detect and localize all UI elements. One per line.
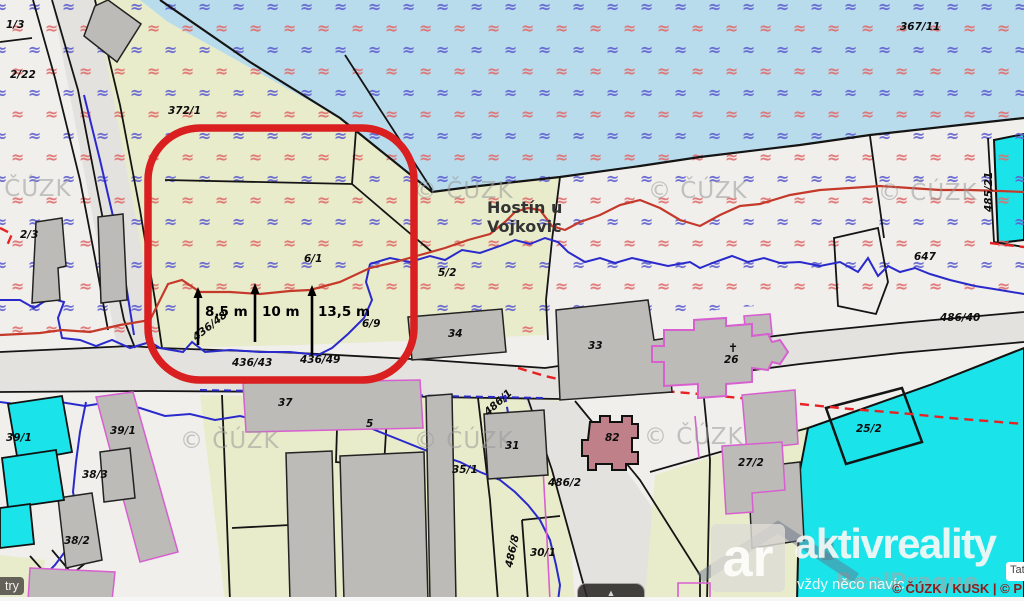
- wave-symbol: ≈: [810, 40, 823, 59]
- wave-symbol: ≈: [487, 62, 500, 81]
- wave-symbol: ≈: [79, 62, 92, 81]
- wave-symbol: ≈: [1014, 169, 1024, 188]
- wave-symbol: ≈: [249, 191, 262, 210]
- wave-symbol: ≈: [555, 19, 568, 38]
- wave-symbol: ≈: [419, 277, 432, 296]
- wave-symbol: ≈: [674, 83, 687, 102]
- wave-symbol: ≈: [793, 105, 806, 124]
- wave-symbol: ≈: [657, 62, 670, 81]
- parcel-label: 38/3: [82, 469, 108, 481]
- wave-symbol: ≈: [589, 19, 602, 38]
- wave-symbol: ≈: [283, 234, 296, 253]
- wave-symbol: ≈: [963, 62, 976, 81]
- wave-symbol: ≈: [487, 277, 500, 296]
- wave-symbol: ≈: [640, 40, 653, 59]
- wave-symbol: ≈: [215, 105, 228, 124]
- wave-symbol: ≈: [963, 105, 976, 124]
- wave-symbol: ≈: [623, 62, 636, 81]
- parcel-label: 38/2: [64, 535, 90, 547]
- wave-symbol: ≈: [623, 105, 636, 124]
- wave-symbol: ≈: [521, 19, 534, 38]
- wave-symbol: ≈: [385, 19, 398, 38]
- wave-symbol: ≈: [283, 62, 296, 81]
- wave-symbol: ≈: [980, 126, 993, 145]
- wave-symbol: ≈: [742, 255, 755, 274]
- wave-symbol: ≈: [589, 234, 602, 253]
- wave-symbol: ≈: [895, 148, 908, 167]
- wave-symbol: ≈: [691, 62, 704, 81]
- parcel-label: 5/2: [438, 267, 456, 279]
- parcel-label: 372/1: [168, 105, 201, 117]
- wave-symbol: ≈: [1014, 212, 1024, 231]
- wave-symbol: ≈: [810, 169, 823, 188]
- wave-symbol: ≈: [453, 62, 466, 81]
- wave-symbol: ≈: [844, 212, 857, 231]
- wave-symbol: ≈: [317, 19, 330, 38]
- wave-symbol: ≈: [657, 19, 670, 38]
- wave-symbol: ≈: [215, 62, 228, 81]
- wave-symbol: ≈: [368, 212, 381, 231]
- wave-symbol: ≈: [113, 62, 126, 81]
- wave-symbol: ≈: [470, 126, 483, 145]
- wave-symbol: ≈: [385, 234, 398, 253]
- wave-symbol: ≈: [725, 277, 738, 296]
- wave-symbol: ≈: [368, 40, 381, 59]
- wave-symbol: ≈: [623, 148, 636, 167]
- wave-symbol: ≈: [776, 255, 789, 274]
- wave-symbol: ≈: [164, 255, 177, 274]
- wave-symbol: ≈: [640, 126, 653, 145]
- wave-symbol: ≈: [11, 320, 24, 339]
- wave-symbol: ≈: [980, 83, 993, 102]
- wave-symbol: ≈: [351, 234, 364, 253]
- wave-symbol: ≈: [453, 105, 466, 124]
- wave-symbol: ≈: [793, 234, 806, 253]
- wave-symbol: ≈: [351, 62, 364, 81]
- wave-symbol: ≈: [521, 277, 534, 296]
- wave-symbol: ≈: [997, 277, 1010, 296]
- wave-symbol: ≈: [776, 212, 789, 231]
- wave-symbol: ≈: [300, 212, 313, 231]
- wave-symbol: ≈: [572, 0, 585, 16]
- wave-symbol: ≈: [453, 277, 466, 296]
- parcel-label: 25/2: [856, 423, 882, 435]
- parcel-label: ✝: [728, 341, 738, 355]
- wave-symbol: ≈: [895, 105, 908, 124]
- wave-symbol: ≈: [980, 0, 993, 16]
- parcel-label: 26: [724, 354, 739, 366]
- parcel-label: 2/22: [10, 69, 36, 81]
- wave-symbol: ≈: [725, 234, 738, 253]
- wave-symbol: ≈: [844, 83, 857, 102]
- wave-symbol: ≈: [912, 212, 925, 231]
- wave-symbol: ≈: [62, 298, 75, 317]
- wave-symbol: ≈: [555, 148, 568, 167]
- wave-symbol: ≈: [504, 255, 517, 274]
- wave-symbol: ≈: [1014, 40, 1024, 59]
- wave-symbol: ≈: [521, 62, 534, 81]
- wave-symbol: ≈: [623, 19, 636, 38]
- wave-symbol: ≈: [419, 62, 432, 81]
- wave-symbol: ≈: [691, 19, 704, 38]
- wave-symbol: ≈: [368, 0, 381, 16]
- measurement-label: 10 m: [262, 304, 300, 320]
- wave-symbol: ≈: [606, 169, 619, 188]
- parcel-label: 647: [914, 251, 937, 263]
- wave-symbol: ≈: [708, 126, 721, 145]
- wave-symbol: ≈: [742, 83, 755, 102]
- wave-symbol: ≈: [827, 19, 840, 38]
- wave-symbol: ≈: [28, 83, 41, 102]
- wave-symbol: ≈: [317, 62, 330, 81]
- wave-symbol: ≈: [538, 298, 551, 317]
- scale-label: try: [0, 577, 24, 595]
- svg-text:Hostín u: Hostín u: [487, 198, 562, 217]
- wave-symbol: ≈: [946, 83, 959, 102]
- wave-symbol: ≈: [28, 126, 41, 145]
- place-name: Hostín u Vojkovic: [487, 198, 562, 236]
- wave-symbol: ≈: [742, 212, 755, 231]
- wave-symbol: ≈: [623, 234, 636, 253]
- wave-symbol: ≈: [249, 105, 262, 124]
- wave-symbol: ≈: [283, 105, 296, 124]
- wave-symbol: ≈: [164, 169, 177, 188]
- wave-symbol: ≈: [912, 83, 925, 102]
- wave-symbol: ≈: [657, 234, 670, 253]
- wave-symbol: ≈: [844, 40, 857, 59]
- wave-symbol: ≈: [810, 83, 823, 102]
- wave-symbol: ≈: [759, 62, 772, 81]
- wave-symbol: ≈: [963, 148, 976, 167]
- wave-symbol: ≈: [249, 148, 262, 167]
- wave-symbol: ≈: [861, 234, 874, 253]
- wave-symbol: ≈: [538, 83, 551, 102]
- wave-symbol: ≈: [181, 191, 194, 210]
- wave-symbol: ≈: [691, 105, 704, 124]
- wave-symbol: ≈: [759, 277, 772, 296]
- wave-symbol: ≈: [691, 234, 704, 253]
- parcel-label: 31: [505, 440, 520, 452]
- wave-symbol: ≈: [946, 255, 959, 274]
- wave-symbol: ≈: [470, 212, 483, 231]
- wave-symbol: ≈: [606, 255, 619, 274]
- wave-symbol: ≈: [844, 126, 857, 145]
- wave-symbol: ≈: [810, 0, 823, 16]
- wave-symbol: ≈: [878, 0, 891, 16]
- cuzk-watermark: © ČÚZK: [648, 176, 748, 204]
- wave-symbol: ≈: [776, 169, 789, 188]
- wave-symbol: ≈: [470, 255, 483, 274]
- wave-symbol: ≈: [589, 62, 602, 81]
- wave-symbol: ≈: [997, 19, 1010, 38]
- wave-symbol: ≈: [62, 212, 75, 231]
- wave-symbol: ≈: [198, 255, 211, 274]
- wave-symbol: ≈: [300, 0, 313, 16]
- wave-symbol: ≈: [861, 277, 874, 296]
- wave-symbol: ≈: [453, 148, 466, 167]
- logo-tagline: vždy něco navíc: [797, 576, 905, 593]
- wave-symbol: ≈: [130, 0, 143, 16]
- wave-symbol: ≈: [827, 277, 840, 296]
- wave-symbol: ≈: [793, 277, 806, 296]
- wave-symbol: ≈: [79, 320, 92, 339]
- wave-symbol: ≈: [674, 40, 687, 59]
- wave-symbol: ≈: [538, 126, 551, 145]
- wave-symbol: ≈: [1014, 83, 1024, 102]
- wave-symbol: ≈: [878, 40, 891, 59]
- cuzk-watermark: © ČÚZK: [0, 174, 72, 202]
- wave-symbol: ≈: [334, 83, 347, 102]
- wave-symbol: ≈: [96, 126, 109, 145]
- wave-symbol: ≈: [11, 148, 24, 167]
- wave-symbol: ≈: [572, 126, 585, 145]
- wave-symbol: ≈: [555, 105, 568, 124]
- wave-symbol: ≈: [623, 191, 636, 210]
- wave-symbol: ≈: [113, 191, 126, 210]
- wave-symbol: ≈: [249, 234, 262, 253]
- cuzk-watermark: © ČÚZK: [414, 426, 514, 454]
- wave-symbol: ≈: [657, 277, 670, 296]
- wave-symbol: ≈: [572, 83, 585, 102]
- parcel-label: 486/40: [939, 312, 980, 324]
- wave-symbol: ≈: [215, 19, 228, 38]
- wave-symbol: ≈: [351, 19, 364, 38]
- wave-symbol: ≈: [572, 40, 585, 59]
- wave-symbol: ≈: [0, 126, 7, 145]
- wave-symbol: ≈: [861, 191, 874, 210]
- wave-symbol: ≈: [946, 212, 959, 231]
- wave-symbol: ≈: [895, 234, 908, 253]
- wave-symbol: ≈: [198, 169, 211, 188]
- wave-symbol: ≈: [283, 277, 296, 296]
- wave-symbol: ≈: [759, 234, 772, 253]
- wave-symbol: ≈: [827, 62, 840, 81]
- wave-symbol: ≈: [0, 0, 7, 16]
- measurement-label: 8,5 m: [205, 304, 248, 320]
- wave-symbol: ≈: [79, 277, 92, 296]
- wave-symbol: ≈: [385, 62, 398, 81]
- svg-text:Vojkovic: Vojkovic: [487, 217, 562, 236]
- wave-symbol: ≈: [419, 19, 432, 38]
- wave-symbol: ≈: [198, 83, 211, 102]
- wave-symbol: ≈: [912, 40, 925, 59]
- wave-symbol: ≈: [45, 320, 58, 339]
- wave-symbol: ≈: [11, 105, 24, 124]
- wave-symbol: ≈: [861, 62, 874, 81]
- wave-symbol: ≈: [895, 62, 908, 81]
- logo-brand-name: aktivreality: [794, 520, 995, 568]
- wave-symbol: ≈: [589, 105, 602, 124]
- wave-symbol: ≈: [606, 126, 619, 145]
- wave-symbol: ≈: [470, 0, 483, 16]
- wave-symbol: ≈: [691, 277, 704, 296]
- wave-symbol: ≈: [130, 83, 143, 102]
- wave-symbol: ≈: [521, 148, 534, 167]
- wave-symbol: ≈: [147, 62, 160, 81]
- wave-symbol: ≈: [827, 148, 840, 167]
- wave-symbol: ≈: [130, 40, 143, 59]
- wave-symbol: ≈: [215, 148, 228, 167]
- wave-symbol: ≈: [708, 83, 721, 102]
- wave-symbol: ≈: [606, 0, 619, 16]
- wave-symbol: ≈: [266, 0, 279, 16]
- wave-symbol: ≈: [266, 83, 279, 102]
- parcel-label: 34: [448, 328, 463, 340]
- bottom-strip: [0, 597, 1024, 601]
- wave-symbol: ≈: [640, 255, 653, 274]
- wave-symbol: ≈: [385, 191, 398, 210]
- wave-symbol: ≈: [317, 148, 330, 167]
- map-attribution: © ČÚZK / KUSK | © P: [892, 581, 1024, 596]
- wave-symbol: ≈: [606, 83, 619, 102]
- wave-symbol: ≈: [147, 105, 160, 124]
- wave-symbol: ≈: [776, 40, 789, 59]
- parcel-label: 5: [366, 418, 373, 430]
- parcel-label: 1/3: [6, 19, 24, 31]
- wave-symbol: ≈: [62, 83, 75, 102]
- wave-symbol: ≈: [164, 212, 177, 231]
- wave-symbol: ≈: [402, 126, 415, 145]
- wave-symbol: ≈: [232, 169, 245, 188]
- wave-symbol: ≈: [1014, 0, 1024, 16]
- wave-symbol: ≈: [538, 0, 551, 16]
- wave-symbol: ≈: [113, 148, 126, 167]
- wave-symbol: ≈: [759, 105, 772, 124]
- wave-symbol: ≈: [487, 105, 500, 124]
- wave-symbol: ≈: [640, 0, 653, 16]
- wave-symbol: ≈: [725, 105, 738, 124]
- wave-symbol: ≈: [878, 126, 891, 145]
- wave-symbol: ≈: [334, 169, 347, 188]
- wave-symbol: ≈: [45, 148, 58, 167]
- wave-symbol: ≈: [130, 298, 143, 317]
- wave-symbol: ≈: [980, 40, 993, 59]
- wave-symbol: ≈: [317, 191, 330, 210]
- wave-symbol: ≈: [385, 277, 398, 296]
- wave-symbol: ≈: [606, 40, 619, 59]
- wave-symbol: ≈: [198, 40, 211, 59]
- wave-symbol: ≈: [215, 234, 228, 253]
- wave-symbol: ≈: [589, 148, 602, 167]
- cuzk-watermark: © ČÚZK: [180, 426, 280, 454]
- wave-symbol: ≈: [929, 105, 942, 124]
- wave-symbol: ≈: [419, 105, 432, 124]
- wave-symbol: ≈: [810, 212, 823, 231]
- wave-symbol: ≈: [130, 126, 143, 145]
- wave-symbol: ≈: [861, 105, 874, 124]
- wave-symbol: ≈: [759, 19, 772, 38]
- wave-symbol: ≈: [504, 40, 517, 59]
- wave-symbol: ≈: [368, 169, 381, 188]
- wave-symbol: ≈: [504, 83, 517, 102]
- wave-symbol: ≈: [419, 148, 432, 167]
- wave-symbol: ≈: [283, 148, 296, 167]
- wave-symbol: ≈: [725, 62, 738, 81]
- wave-symbol: ≈: [453, 19, 466, 38]
- parcel-label: 39/1: [110, 425, 136, 437]
- cadastral-map: ≈≈≈≈≈≈≈≈≈≈≈≈≈≈≈≈≈≈≈≈≈≈≈≈≈≈≈≈≈≈≈≈≈≈≈≈≈≈≈≈…: [0, 0, 1024, 601]
- wave-symbol: ≈: [232, 255, 245, 274]
- parcel-label: 2/3: [20, 229, 38, 241]
- wave-symbol: ≈: [436, 40, 449, 59]
- wave-symbol: ≈: [96, 83, 109, 102]
- wave-symbol: ≈: [181, 62, 194, 81]
- wave-symbol: ≈: [504, 298, 517, 317]
- wave-symbol: ≈: [640, 83, 653, 102]
- parcel-label: 39/1: [6, 432, 32, 444]
- wave-symbol: ≈: [997, 148, 1010, 167]
- wave-symbol: ≈: [725, 19, 738, 38]
- wave-symbol: ≈: [589, 277, 602, 296]
- wave-symbol: ≈: [62, 0, 75, 16]
- map-viewport: ≈≈≈≈≈≈≈≈≈≈≈≈≈≈≈≈≈≈≈≈≈≈≈≈≈≈≈≈≈≈≈≈≈≈≈≈≈≈≈≈…: [0, 0, 1024, 601]
- parcel-label: 485/21: [983, 172, 995, 213]
- wave-symbol: ≈: [929, 148, 942, 167]
- wave-symbol: ≈: [198, 0, 211, 16]
- wave-symbol: ≈: [827, 191, 840, 210]
- parcel-label: 37: [278, 397, 293, 409]
- wave-symbol: ≈: [997, 62, 1010, 81]
- parcel-label: 30/1: [530, 547, 556, 559]
- wave-symbol: ≈: [742, 0, 755, 16]
- wave-symbol: ≈: [946, 126, 959, 145]
- wave-symbol: ≈: [164, 83, 177, 102]
- wave-symbol: ≈: [589, 191, 602, 210]
- measurement-label: 13,5 m: [318, 304, 370, 320]
- wave-symbol: ≈: [28, 40, 41, 59]
- wave-symbol: ≈: [929, 234, 942, 253]
- wave-symbol: ≈: [436, 0, 449, 16]
- info-box: Tat: [1006, 562, 1024, 581]
- wave-symbol: ≈: [555, 62, 568, 81]
- wave-symbol: ≈: [266, 40, 279, 59]
- wave-symbol: ≈: [572, 169, 585, 188]
- wave-symbol: ≈: [436, 126, 449, 145]
- wave-symbol: ≈: [334, 255, 347, 274]
- wave-symbol: ≈: [657, 105, 670, 124]
- parcel-label: 486/2: [547, 477, 581, 489]
- wave-symbol: ≈: [504, 0, 517, 16]
- wave-symbol: ≈: [232, 212, 245, 231]
- cuzk-watermark: © ČÚZK: [644, 422, 744, 450]
- wave-symbol: ≈: [725, 148, 738, 167]
- wave-symbol: ≈: [147, 19, 160, 38]
- wave-symbol: ≈: [623, 277, 636, 296]
- wave-symbol: ≈: [521, 105, 534, 124]
- wave-symbol: ≈: [164, 40, 177, 59]
- wave-symbol: ≈: [674, 0, 687, 16]
- parcel-label: 35/1: [452, 464, 478, 476]
- wave-symbol: ≈: [793, 62, 806, 81]
- wave-symbol: ≈: [181, 234, 194, 253]
- wave-symbol: ≈: [436, 83, 449, 102]
- wave-symbol: ≈: [334, 212, 347, 231]
- wave-symbol: ≈: [0, 40, 7, 59]
- wave-symbol: ≈: [1014, 255, 1024, 274]
- wave-symbol: ≈: [776, 126, 789, 145]
- wave-symbol: ≈: [980, 212, 993, 231]
- wave-symbol: ≈: [0, 255, 7, 274]
- wave-symbol: ≈: [878, 83, 891, 102]
- wave-symbol: ≈: [45, 19, 58, 38]
- wave-symbol: ≈: [402, 40, 415, 59]
- wave-symbol: ≈: [402, 83, 415, 102]
- wave-symbol: ≈: [997, 191, 1010, 210]
- cuzk-watermark: © ČÚZK: [878, 178, 978, 206]
- wave-symbol: ≈: [487, 148, 500, 167]
- parcel-label: 27/2: [738, 457, 764, 469]
- parcel-label: 6/1: [304, 253, 322, 265]
